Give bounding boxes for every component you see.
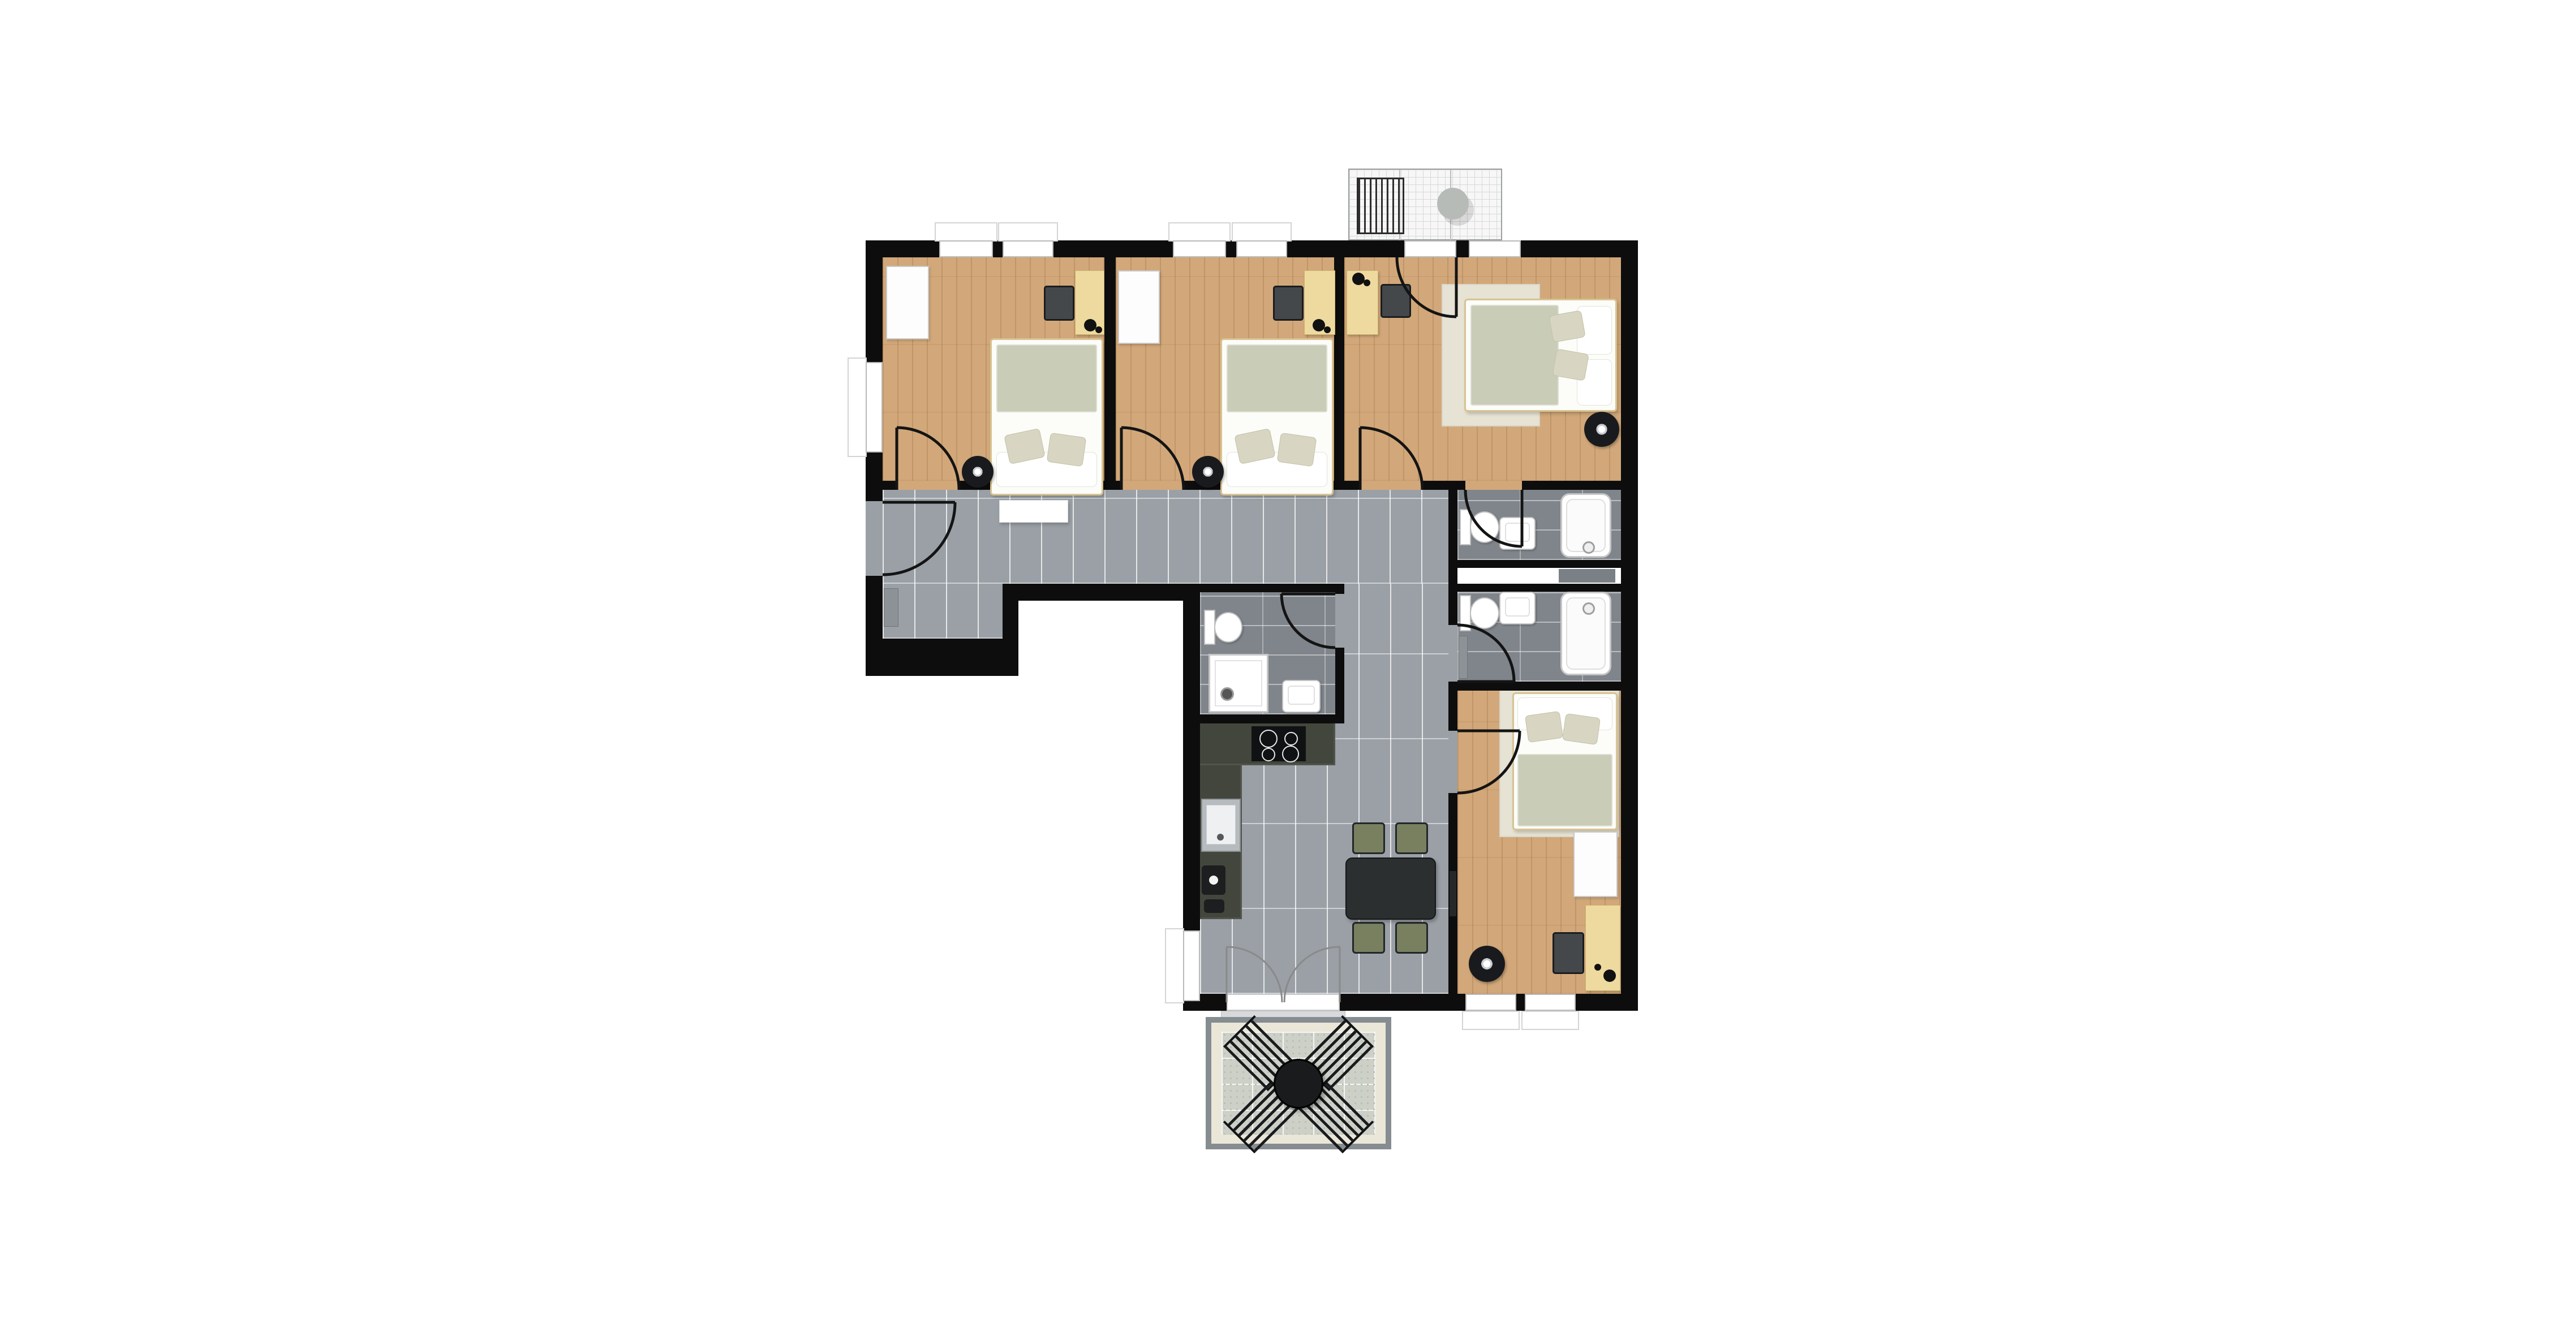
french-door-left	[1227, 947, 1282, 1002]
entry-door	[883, 502, 955, 575]
bedroom-3-door	[1360, 428, 1422, 490]
shower-room-door	[1281, 594, 1335, 648]
door-swing-overlay	[0, 0, 2576, 1323]
bathroom-1-door	[1465, 490, 1522, 546]
bedroom-1-door	[897, 428, 959, 490]
french-door-right	[1284, 947, 1340, 1002]
bedroom-4-door	[1457, 731, 1520, 793]
bedroom-3-balcony-door-swing	[1397, 257, 1456, 317]
bedroom-2-door	[1121, 428, 1184, 490]
floor-plan-page	[0, 0, 2576, 1323]
bathroom-2-door	[1457, 625, 1514, 682]
